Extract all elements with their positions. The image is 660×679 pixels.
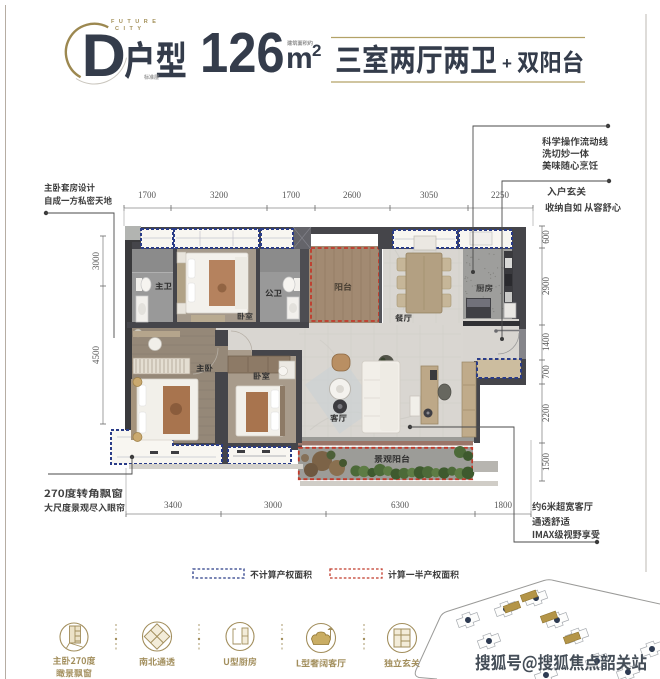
svg-text:700: 700: [541, 365, 551, 379]
svg-text:m: m: [286, 42, 313, 75]
svg-text:1500: 1500: [541, 453, 551, 472]
svg-text:2200: 2200: [541, 404, 551, 423]
svg-text:+: +: [502, 54, 512, 73]
svg-text:126: 126: [200, 21, 285, 84]
svg-text:3050: 3050: [420, 190, 439, 200]
svg-text:4500: 4500: [91, 346, 101, 365]
svg-text:600: 600: [541, 230, 551, 244]
svg-text:2600: 2600: [343, 190, 362, 200]
svg-text:6300: 6300: [391, 500, 410, 510]
svg-text:3000: 3000: [91, 252, 101, 271]
svg-text:3400: 3400: [164, 500, 183, 510]
svg-text:2900: 2900: [541, 277, 551, 296]
svg-text:1800: 1800: [494, 500, 513, 510]
svg-text:3000: 3000: [264, 500, 283, 510]
svg-text:1400: 1400: [541, 333, 551, 352]
svg-text:1700: 1700: [138, 190, 157, 200]
svg-text:2250: 2250: [491, 190, 510, 200]
svg-text:2: 2: [312, 41, 321, 60]
svg-text:1700: 1700: [282, 190, 301, 200]
svg-text:3200: 3200: [210, 190, 229, 200]
svg-text:D: D: [82, 22, 126, 89]
